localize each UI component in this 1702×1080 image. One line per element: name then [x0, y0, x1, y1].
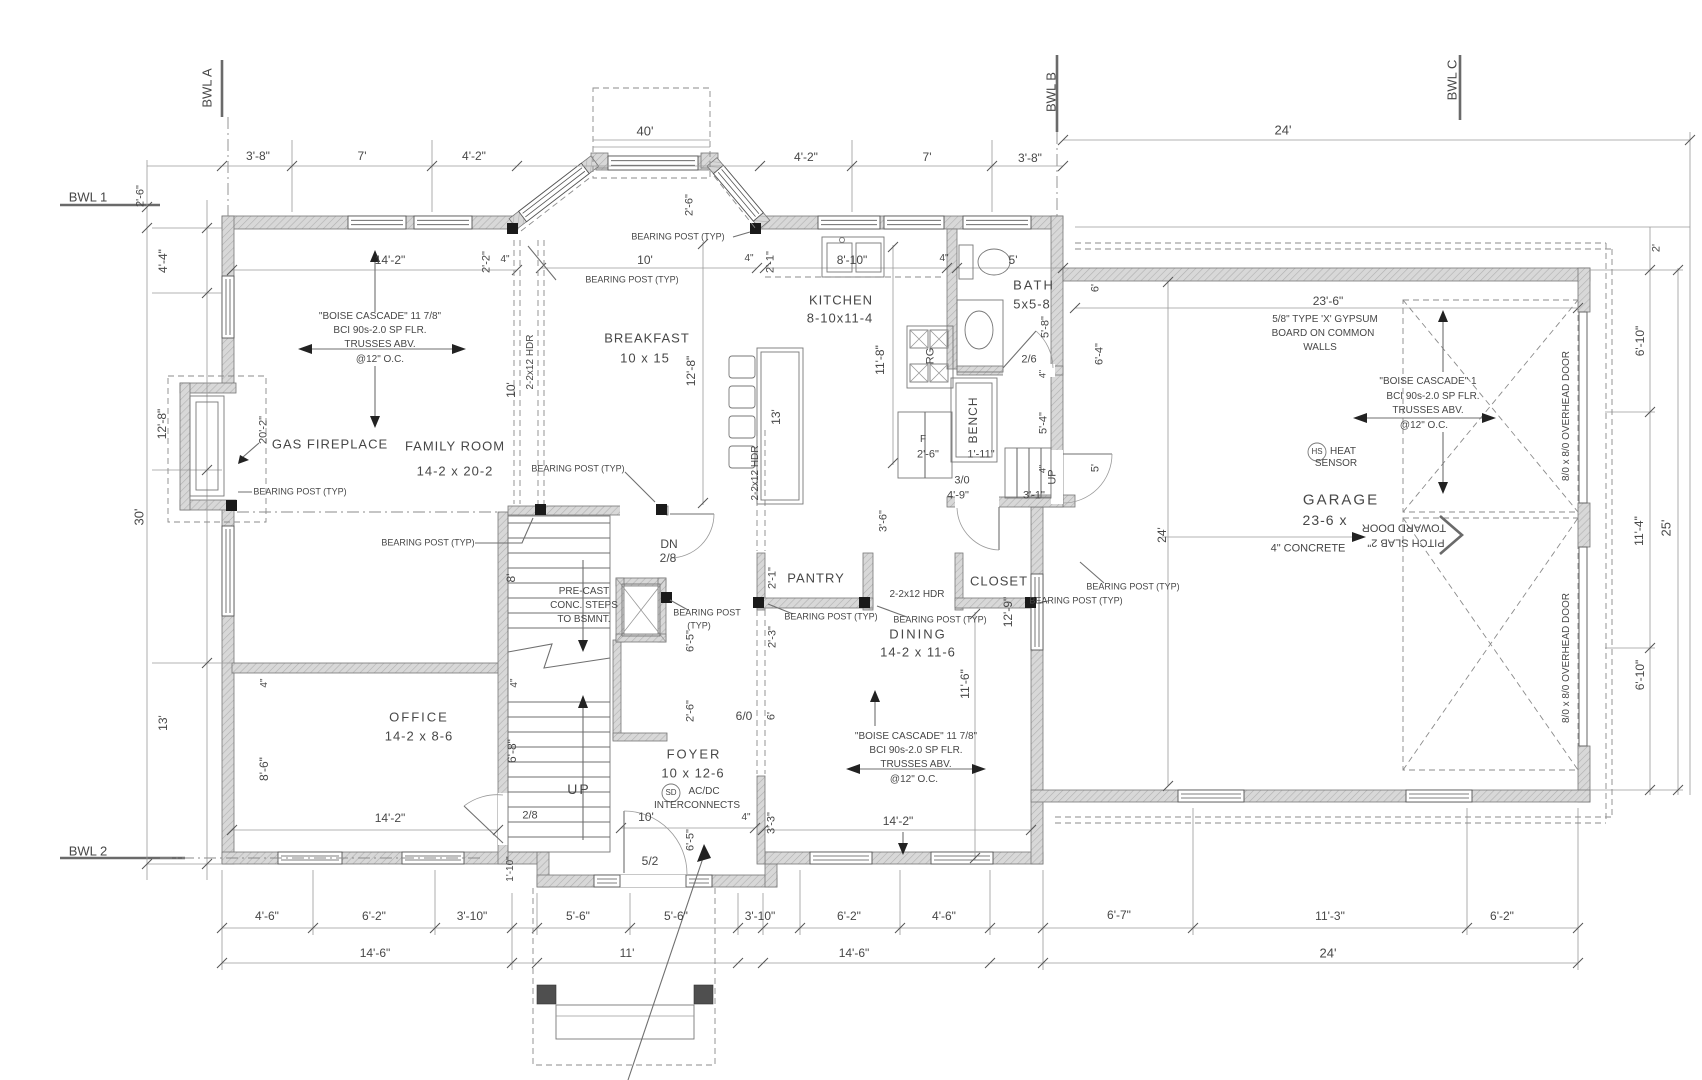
label-14-6: 14'-6" — [839, 947, 870, 959]
label-5: 5' — [1009, 254, 1018, 266]
label-2-6: 2'-6" — [917, 450, 939, 461]
label-6-2: 6'-2" — [837, 910, 861, 922]
label-25: 25' — [1660, 520, 1673, 537]
label-6-5: 6'-5" — [686, 630, 697, 652]
label-bci-90s-2-0-sp-flr: BCI 90s-2.0 SP FLR. — [869, 746, 962, 756]
label-6-8: 6'-8" — [506, 739, 518, 763]
label-2-3: 2'-3" — [768, 626, 779, 648]
label-board-on-common: BOARD ON COMMON — [1272, 329, 1375, 339]
label-trusses-abv: TRUSSES ABV. — [880, 760, 951, 770]
label-11-6: 11'-6" — [959, 669, 971, 699]
room-pantry: PANTRY — [787, 572, 845, 585]
label-bearing-post-typ: BEARING POST (TYP) — [1086, 583, 1179, 592]
label-2-2x12-hdr: 2-2x12 HDR — [751, 445, 761, 500]
label-3-6: 3'-6" — [879, 510, 890, 532]
tag-heat-sensor: HS — [1311, 448, 1322, 456]
note-family-joists-1: "BOISE CASCADE" 11 7/8" — [319, 312, 441, 322]
label-23-6-x: 23-6 x — [1303, 513, 1348, 527]
room-gas-fireplace: GAS FIREPLACE — [272, 438, 388, 451]
label-14-2-x-8-6: 14-2 x 8-6 — [385, 730, 454, 743]
label-5-4: 5'-4" — [1039, 412, 1050, 434]
label-6: 6' — [1091, 284, 1102, 292]
label-sd: SD — [665, 789, 676, 797]
label-bearing-post-typ: BEARING POST (TYP) — [893, 616, 986, 625]
room-breakfast: BREAKFAST — [604, 332, 690, 345]
room-family: FAMILY ROOM — [405, 440, 505, 453]
label-bearing-post-typ: BEARING POST (TYP) — [381, 539, 474, 548]
label-2-2x12-hdr: 2-2x12 HDR — [889, 590, 944, 600]
label-heat: HEAT — [1330, 447, 1356, 457]
label-8-10x11-4: 8-10x11-4 — [807, 312, 874, 325]
label-6: 6' — [767, 712, 778, 720]
note-dining-joists-1: "BOISE CASCADE" 11 7/8" — [855, 732, 977, 742]
label-bearing-post-typ: BEARING POST (TYP) — [631, 233, 724, 242]
label-14-2: 14'-2" — [375, 812, 406, 824]
label-f: F — [920, 435, 926, 445]
label-4: 4" — [939, 254, 948, 264]
label-5-2: 5/2 — [642, 855, 659, 867]
label-40: 40' — [637, 125, 654, 138]
note-garage-joists-1: "BOISE CASCADE" 1 — [1379, 377, 1476, 387]
label-bci-90s-2-0-sp-flr: BCI 90s-2.0 SP FLR. — [333, 326, 426, 336]
label-12-o-c: @12" O.C. — [356, 355, 404, 365]
label-4: 4" — [500, 255, 509, 265]
label-bearing-post-typ: BEARING POST (TYP) — [253, 488, 346, 497]
label-10-x-15: 10 x 15 — [620, 352, 670, 365]
label-bearing-post-typ: BEARING POST (TYP) — [784, 613, 877, 622]
label-8-6: 8'-6" — [258, 757, 270, 781]
label-4: 4" — [510, 678, 520, 687]
label-12-o-c: @12" O.C. — [1400, 421, 1448, 431]
label-bearing-post-typ: BEARING POST (TYP) — [1029, 597, 1122, 606]
label-6-2: 6'-2" — [1490, 910, 1514, 922]
label-11-8: 11'-8" — [874, 345, 886, 375]
label-4: 4" — [260, 678, 270, 687]
label-12-o-c: @12" O.C. — [890, 775, 938, 785]
label-13: 13' — [157, 715, 169, 731]
room-kitchen: KITCHEN — [809, 294, 873, 307]
label-14-2: 14'-2" — [375, 254, 406, 266]
label-4-4: 4'-4" — [157, 249, 169, 273]
label-bci-90s-2-0-sp-flr: BCI 90s-2.0 SP FLR. — [1386, 392, 1479, 402]
label-trusses-abv: TRUSSES ABV. — [1392, 406, 1463, 416]
fixture-bench: BENCH — [967, 396, 979, 443]
label-14-2-x-11-6: 14-2 x 11-6 — [880, 646, 956, 659]
label-interconnects: INTERCONNECTS — [654, 801, 740, 811]
label-6-10: 6'-10" — [1634, 660, 1646, 691]
label-up: UP — [1048, 469, 1059, 484]
label-12-8: 12'-8" — [156, 409, 168, 440]
label-3-8: 3'-8" — [1018, 152, 1042, 164]
label-2-2x12-hdr: 2-2x12 HDR — [526, 334, 536, 389]
label-1-10: 1'-10" — [506, 856, 516, 881]
label-bearing-post: BEARING POST — [673, 609, 741, 618]
label-8-10: 8'-10" — [837, 254, 868, 266]
grid-bwl-b: BWL B — [1045, 72, 1058, 112]
label-12-9: 12'-9" — [1002, 597, 1014, 628]
label-6-4: 6'-4" — [1095, 343, 1106, 365]
label-10: 10' — [505, 382, 517, 398]
room-closet: CLOSET — [970, 575, 1028, 588]
label-20-2: 20'-2" — [259, 416, 270, 444]
label-4-2: 4'-2" — [462, 150, 486, 162]
grid-bwl-1: BWL 1 — [69, 191, 108, 204]
label-2-1: 2'-1" — [768, 567, 779, 589]
label-14-2-x-20-2: 14-2 x 20-2 — [417, 465, 494, 478]
label-6-5: 6'-5" — [686, 829, 697, 851]
label-6-7: 6'-7" — [1107, 909, 1131, 921]
label-4-6: 4'-6" — [255, 910, 279, 922]
grid-bwl-c: BWL C — [1446, 60, 1459, 101]
label-24: 24' — [1320, 947, 1337, 960]
label-3-1: 3'-1" — [1023, 491, 1045, 502]
label-2-8: 2/8 — [522, 811, 537, 822]
label-5-6: 5'-6" — [664, 910, 688, 922]
room-garage: GARAGE — [1303, 493, 1379, 508]
label-6-0: 6/0 — [736, 710, 753, 722]
label-4: 4" — [741, 813, 750, 823]
label-2-6: 2'-6" — [685, 194, 696, 216]
grid-bwl-a: BWL A — [201, 68, 214, 107]
label-14-6: 14'-6" — [360, 947, 391, 959]
label-ac-dc: AC/DC — [688, 787, 719, 797]
label-toward-door: TOWARD DOOR — [1362, 522, 1446, 533]
room-dining: DINING — [889, 628, 947, 641]
label-24: 24' — [1275, 124, 1292, 137]
label-pre-cast: PRE-CAST — [559, 587, 610, 597]
label-12-8: 12'-8" — [685, 356, 697, 387]
label-bearing-post-typ: BEARING POST (TYP) — [585, 276, 678, 285]
label-30: 30' — [133, 509, 146, 526]
label-2-8: 2/8 — [660, 552, 677, 564]
label-3-10: 3'-10" — [745, 910, 776, 922]
label-10-x-12-6: 10 x 12-6 — [661, 767, 724, 780]
label-8: 8' — [505, 574, 517, 583]
floor-plan-labels: BWL ABWL BBWL CBWL 1BWL 23'-8"7'4'-2"40'… — [0, 0, 1702, 1080]
label-24: 24' — [1156, 527, 1168, 543]
label-23-6: 23'-6" — [1313, 295, 1344, 307]
label-5-8: 5'-8" — [1041, 316, 1052, 338]
tag-overhead-door-2: 8/0 x 8/0 OVERHEAD DOOR — [1562, 593, 1572, 723]
label-conc-steps: CONC. STEPS — [550, 601, 618, 611]
label-1-11: 1'-11" — [967, 450, 994, 461]
label-3-8: 3'-8" — [246, 150, 270, 162]
room-foyer: FOYER — [667, 748, 722, 761]
label-2-6: 2'-6" — [686, 700, 697, 722]
label-walls: WALLS — [1303, 343, 1337, 353]
label-5x5-8: 5x5-8 — [1013, 298, 1051, 311]
label-up: UP — [567, 782, 590, 796]
label-13: 13' — [770, 409, 782, 425]
label-10: 10' — [638, 811, 654, 823]
grid-bwl-2: BWL 2 — [69, 845, 108, 858]
label-2-2: 2'-2" — [482, 251, 493, 273]
tag-overhead-door-1: 8/0 x 8/0 OVERHEAD DOOR — [1562, 351, 1572, 481]
label-7: 7' — [358, 150, 367, 162]
label-11: 11' — [620, 947, 635, 959]
floor-plan: BWL ABWL BBWL CBWL 1BWL 23'-8"7'4'-2"40'… — [0, 0, 1702, 1080]
label-sensor: SENSOR — [1315, 459, 1357, 469]
label-4-6: 4'-6" — [932, 910, 956, 922]
note-gypsum-1: 5/8" TYPE 'X' GYPSUM — [1272, 315, 1378, 325]
label-bearing-post-typ: BEARING POST (TYP) — [531, 465, 624, 474]
label-5-6: 5'-6" — [566, 910, 590, 922]
label-4-9: 4'-9" — [947, 491, 969, 502]
label-3-10: 3'-10" — [457, 910, 488, 922]
label-2: 2' — [1652, 244, 1663, 252]
label-5: 5' — [1091, 464, 1102, 472]
label-11-3: 11'-3" — [1315, 910, 1345, 922]
label-4: 4" — [744, 254, 753, 264]
label-dn: DN — [660, 538, 677, 550]
label-4-concrete: 4" CONCRETE — [1271, 544, 1346, 555]
label-7: 7' — [923, 151, 932, 163]
label-14-2: 14'-2" — [883, 815, 914, 827]
label-2-1: 2'-1" — [766, 251, 777, 273]
label-pitch-slab-2: PITCH SLAB 2" — [1367, 537, 1444, 548]
label-11-4: 11'-4" — [1633, 516, 1645, 546]
label-6-2: 6'-2" — [362, 910, 386, 922]
room-office: OFFICE — [389, 711, 449, 724]
label-3-0: 3/0 — [954, 476, 969, 487]
room-bath: BATH — [1013, 279, 1055, 292]
label-trusses-abv: TRUSSES ABV. — [344, 340, 415, 350]
label-to-bsmnt: TO BSMNT. — [557, 615, 610, 625]
label-2-6: 2/6 — [1021, 355, 1036, 366]
label-rg: RG — [926, 348, 937, 365]
label-4-2: 4'-2" — [794, 151, 818, 163]
label-2-6: 2'-6" — [136, 185, 147, 207]
label-4: 4" — [1039, 370, 1048, 378]
label-3-3: 3'-3" — [767, 812, 778, 834]
label-10: 10' — [637, 254, 653, 266]
label-6-10: 6'-10" — [1634, 326, 1646, 357]
